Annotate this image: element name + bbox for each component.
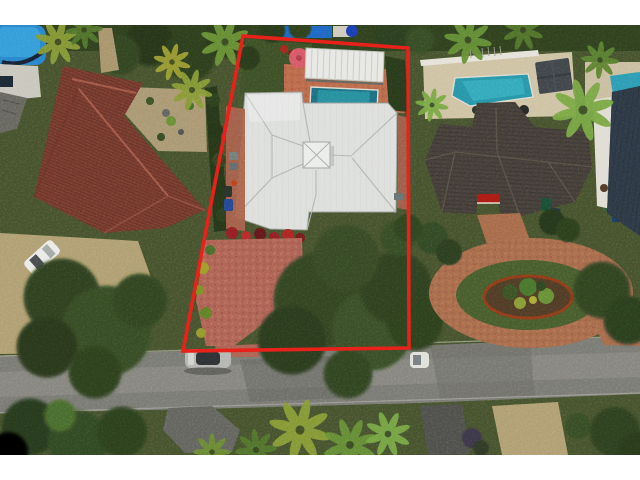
photo-area	[0, 2, 640, 480]
photo-grain-overlay	[0, 25, 640, 455]
letterbox-top	[0, 0, 640, 25]
aerial-photo-screenshot	[0, 0, 640, 480]
aerial-photo	[0, 0, 640, 480]
letterbox-bottom	[0, 455, 640, 480]
